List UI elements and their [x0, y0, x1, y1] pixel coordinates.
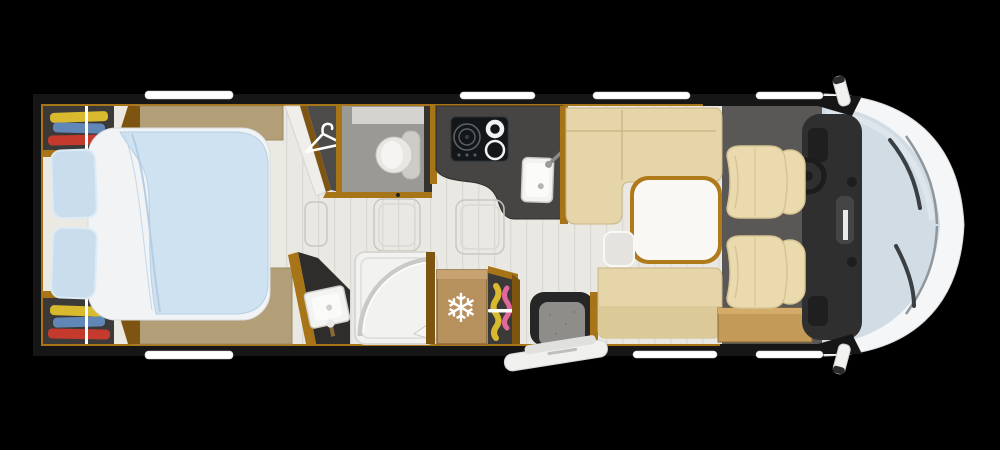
- hanging-rail: [85, 106, 88, 150]
- window: [756, 92, 823, 99]
- driver-seat: [727, 146, 805, 218]
- table-extension-leaf: [604, 232, 634, 266]
- window: [145, 91, 233, 99]
- dashboard-knob: [847, 257, 857, 267]
- sideboard-cabinet-edge: [718, 308, 812, 314]
- wardrobe-small: [488, 266, 520, 344]
- hob: [451, 117, 508, 161]
- seat-cushion: [727, 236, 787, 308]
- shower: [355, 252, 437, 344]
- hob-knob: [457, 153, 460, 156]
- passenger-seat: [727, 236, 805, 308]
- motorhome-floorplan: ❄: [0, 0, 1000, 450]
- pillow: [51, 227, 97, 298]
- hob-knob: [465, 153, 468, 156]
- clothes-yellow: [50, 111, 108, 123]
- sink-inner: [525, 163, 549, 198]
- step-speckle: [549, 314, 551, 316]
- bench-backrest: [598, 306, 722, 338]
- window: [145, 351, 233, 359]
- window: [593, 92, 690, 99]
- window: [633, 351, 717, 358]
- door-sill: [326, 192, 432, 198]
- toilet-shelf: [352, 107, 428, 124]
- hob-knob: [473, 153, 476, 156]
- burner-center: [465, 135, 469, 139]
- wood-wall: [426, 252, 435, 344]
- pillow: [51, 149, 97, 218]
- dashboard-screen: [843, 210, 848, 240]
- fridge: ❄: [437, 270, 487, 344]
- step-speckle: [555, 333, 557, 335]
- step-speckle: [565, 323, 567, 325]
- snowflake-icon: ❄: [444, 286, 478, 332]
- dashboard-vent: [808, 296, 828, 326]
- dashboard-vent: [808, 128, 828, 162]
- wood-wall: [336, 106, 342, 196]
- clothes-red: [48, 328, 110, 339]
- step-speckle: [573, 311, 575, 313]
- fridge-top-edge: [437, 270, 487, 279]
- wood-door: [512, 274, 520, 344]
- hanging-rail: [85, 298, 88, 344]
- door-handle: [396, 193, 400, 197]
- window: [460, 92, 535, 99]
- window: [756, 351, 823, 358]
- dinette-table-top: [634, 180, 718, 260]
- floorplan-canvas: ❄: [0, 0, 1000, 450]
- toilet-room: [326, 106, 432, 198]
- dashboard: [792, 114, 862, 340]
- clothes-blue: [53, 316, 105, 327]
- dashboard-knob: [847, 177, 857, 187]
- toilet-seat: [381, 141, 403, 169]
- clothes-blue: [53, 122, 105, 133]
- seat-cushion: [727, 146, 787, 218]
